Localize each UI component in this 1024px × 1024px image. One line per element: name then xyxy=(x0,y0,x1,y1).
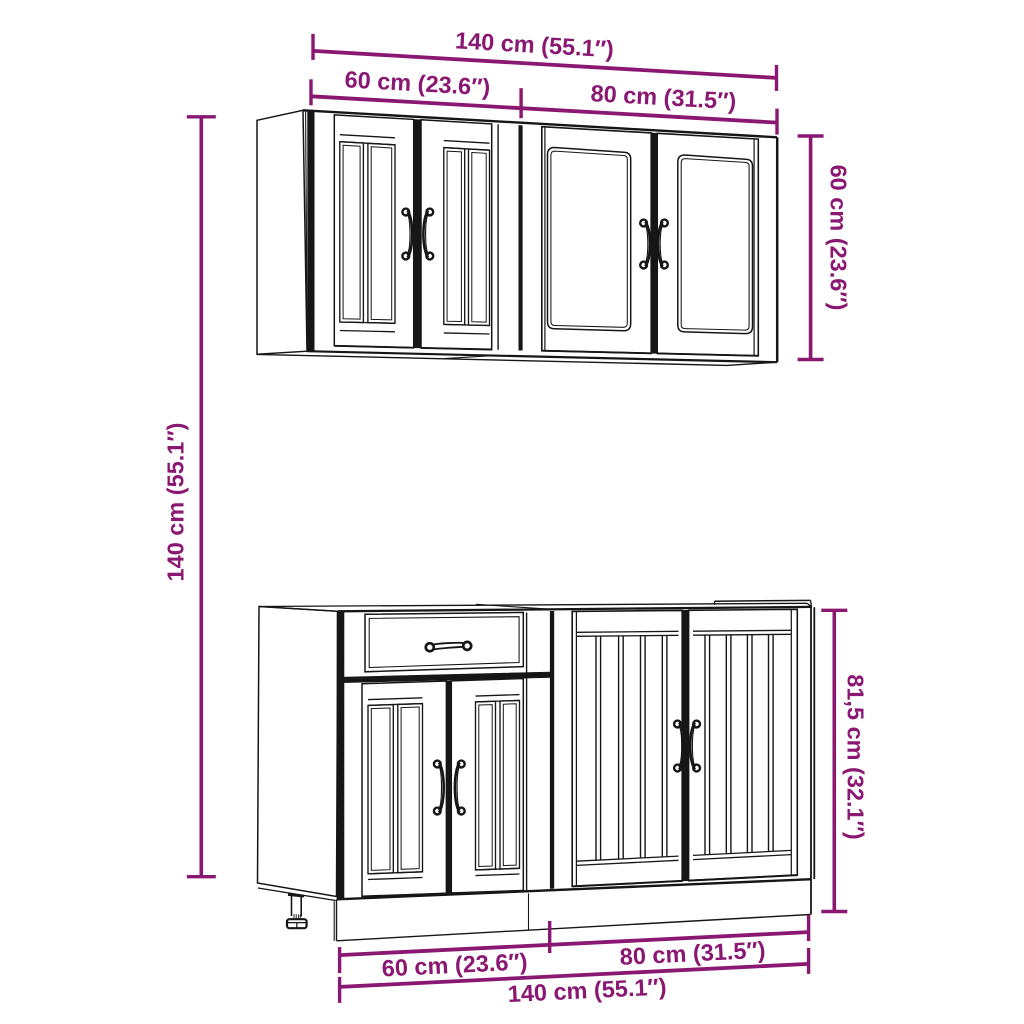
svg-text:140 cm (55.1″): 140 cm (55.1″) xyxy=(163,423,189,582)
svg-text:60 cm (23.6″): 60 cm (23.6″) xyxy=(826,165,852,311)
svg-text:81,5 cm (32.1″): 81,5 cm (32.1″) xyxy=(843,674,869,839)
